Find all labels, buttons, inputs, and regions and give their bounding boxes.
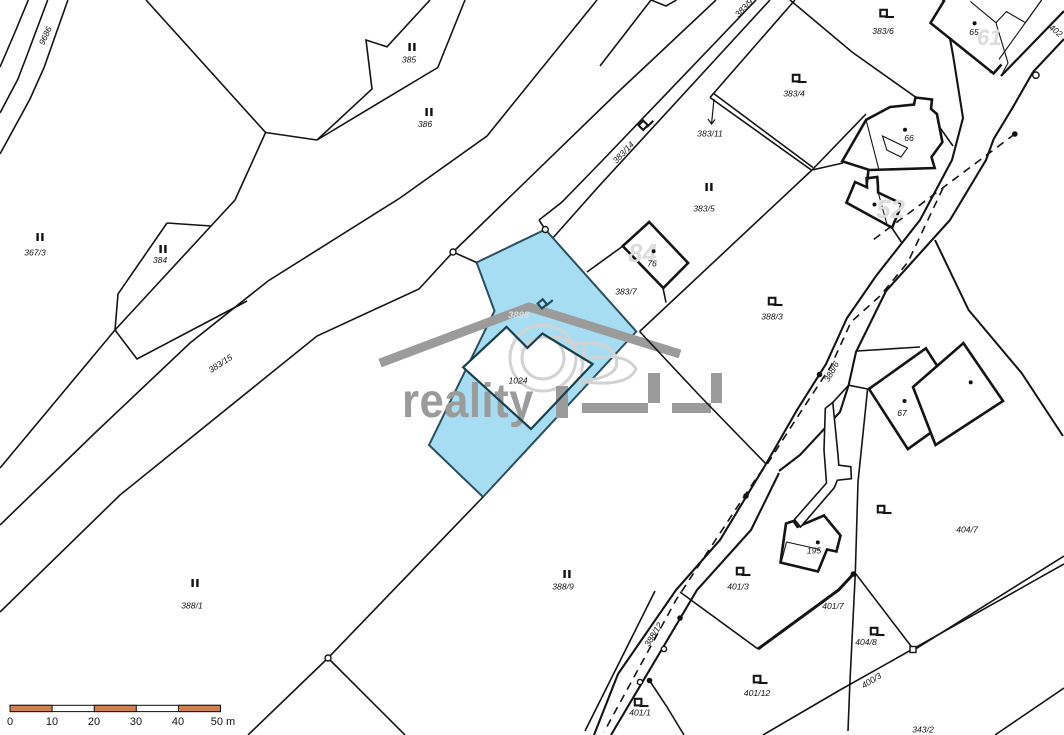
svg-text:385: 385 [402, 55, 417, 65]
svg-text:50 m: 50 m [211, 716, 235, 728]
svg-text:67: 67 [897, 408, 908, 418]
svg-text:30: 30 [130, 716, 142, 728]
svg-text:384: 384 [153, 255, 168, 265]
svg-text:388/3: 388/3 [761, 312, 783, 322]
svg-text:66: 66 [904, 133, 914, 143]
svg-text:383/11: 383/11 [697, 129, 723, 139]
svg-text:61: 61 [977, 25, 1001, 50]
svg-text:1024: 1024 [508, 376, 527, 386]
svg-text:401/1: 401/1 [629, 708, 651, 718]
svg-text:383/6: 383/6 [872, 26, 894, 36]
svg-text:76: 76 [647, 259, 657, 269]
svg-text:386: 386 [418, 119, 433, 129]
svg-text:40: 40 [172, 716, 184, 728]
svg-text:388/1: 388/1 [181, 601, 203, 611]
svg-text:404/8: 404/8 [855, 637, 877, 647]
svg-text:0: 0 [7, 716, 13, 728]
svg-text:52: 52 [876, 194, 905, 224]
svg-text:401/3: 401/3 [727, 582, 749, 592]
svg-text:65: 65 [969, 27, 979, 37]
svg-text:383/7: 383/7 [615, 287, 638, 297]
svg-text:367/3: 367/3 [24, 248, 46, 258]
svg-text:20: 20 [88, 716, 100, 728]
svg-text:404/7: 404/7 [956, 525, 979, 535]
svg-text:343/2: 343/2 [912, 725, 934, 735]
svg-text:401/12: 401/12 [744, 688, 771, 698]
svg-text:383/4: 383/4 [783, 89, 805, 99]
svg-text:195: 195 [807, 546, 822, 556]
svg-text:10: 10 [46, 716, 58, 728]
svg-text:383/5: 383/5 [693, 204, 715, 214]
svg-text:388/9: 388/9 [552, 582, 574, 592]
svg-text:3898: 3898 [508, 310, 530, 321]
svg-text:401/7: 401/7 [822, 601, 845, 611]
